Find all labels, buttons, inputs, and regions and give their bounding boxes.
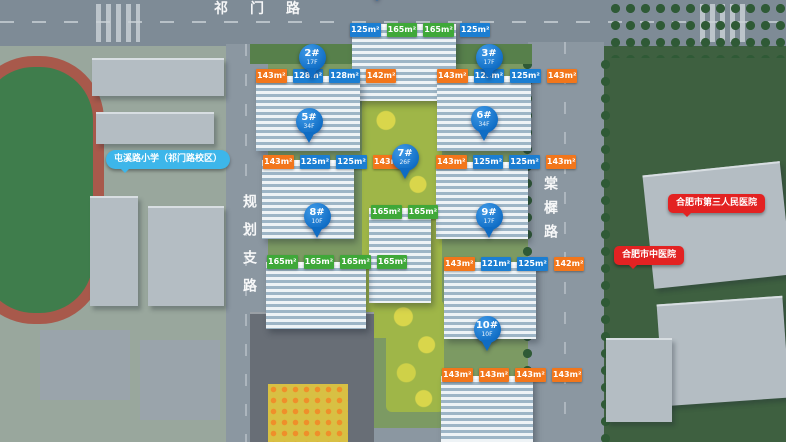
school-running-track — [0, 56, 104, 324]
pin-tail-icon — [399, 168, 411, 179]
pin-tail-icon — [483, 68, 495, 79]
pin-number: 2# — [304, 49, 319, 59]
school-building — [140, 340, 220, 420]
unit-area-label: 143m² — [444, 257, 475, 271]
unit-labels-building-5: 143m² 125m² 125m² 143m² — [263, 149, 404, 169]
pin-tail-icon — [481, 340, 493, 351]
unit-area-label: 143m² — [547, 69, 578, 83]
unit-area-label: 143m² — [546, 155, 577, 169]
pin-subtext: 34F — [478, 122, 489, 128]
map-pin-8[interactable]: 8# 10F — [302, 203, 332, 238]
pin-head: 7# 26F — [392, 144, 419, 171]
unit-area-label: 128m² — [329, 69, 360, 83]
pin-number: 10# — [476, 321, 498, 331]
hospital-building — [657, 296, 786, 407]
pin-number: 9# — [481, 208, 496, 218]
unit-area-label: 121m² — [481, 257, 512, 271]
pin-tail-icon — [371, 0, 383, 1]
hospital-label-bubble-bottom[interactable]: 合肥市中医院 — [614, 246, 684, 265]
pin-head: 2# 17F — [299, 44, 326, 71]
pin-subtext: 34F — [303, 124, 314, 130]
unit-area-label: 165m² — [387, 23, 418, 37]
unit-area-label: 165m² — [423, 23, 454, 37]
pin-head: 8# 10F — [304, 203, 331, 230]
unit-labels-building-10: 143m² 143m² 143m² 143m² — [442, 362, 583, 382]
unit-area-label: 165m² — [304, 255, 335, 269]
unit-labels-building-6: 143m² 125m² 125m² 143m² — [436, 149, 577, 169]
unit-area-label: 143m² — [263, 155, 294, 169]
crosswalk — [96, 4, 140, 42]
pin-head: 9# 17F — [476, 203, 503, 230]
unit-area-label: 125m² — [517, 257, 548, 271]
pin-number: 8# — [309, 208, 324, 218]
unit-labels-building-3: 143m² 125m² 125m² 143m² — [437, 63, 578, 83]
tree-row — [608, 0, 786, 58]
unit-labels-building-8: 165m² 165m² 165m² 165m² — [267, 249, 408, 269]
school-building — [96, 112, 214, 144]
map-pin-3[interactable]: 3# 17F — [474, 44, 504, 79]
pin-tail-icon — [311, 227, 323, 238]
pin-subtext: 17F — [483, 219, 494, 225]
unit-area-label: 125m² — [473, 155, 504, 169]
unit-area-label: 125m² — [336, 155, 367, 169]
pin-subtext: 17F — [483, 60, 494, 66]
unit-labels-building-7: 165m² 165m² — [371, 199, 439, 219]
unit-area-label: 165m² — [408, 205, 439, 219]
unit-labels-top-building: 125m² 165m² 165m² 125m² — [350, 17, 491, 37]
pin-head: 6# 34F — [471, 106, 498, 133]
map-pin-7[interactable]: 7# 26F — [390, 144, 420, 179]
unit-area-label: 142m² — [554, 257, 585, 271]
unit-area-label: 143m² — [436, 155, 467, 169]
unit-area-label: 143m² — [256, 69, 287, 83]
road-name-tangxi: 棠樨路 — [540, 176, 560, 248]
unit-area-label: 165m² — [377, 255, 408, 269]
site-plan: 125m² 165m² 165m² 125m² 143m² 128m² 128m… — [0, 0, 786, 442]
pin-subtext: 10F — [481, 332, 492, 338]
unit-area-label: 165m² — [340, 255, 371, 269]
unit-area-label: 165m² — [371, 205, 402, 219]
residential-tower-8 — [266, 262, 366, 329]
pin-tail-icon — [478, 130, 490, 141]
road-name-guihuazhi: 规划支路 — [239, 194, 259, 306]
map-pin-2[interactable]: 2# 17F — [297, 44, 327, 79]
school-label-bubble[interactable]: 屯溪路小学（祁门路校区） — [106, 150, 230, 169]
hospital-building — [606, 338, 672, 422]
pin-number: 3# — [481, 49, 496, 59]
pin-number: 5# — [301, 113, 316, 123]
central-garden — [386, 300, 444, 412]
unit-area-label: 143m² — [515, 368, 546, 382]
map-pin-6[interactable]: 6# 34F — [469, 106, 499, 141]
kindergarten-playground — [268, 384, 348, 442]
pin-head: 3# 17F — [476, 44, 503, 71]
unit-area-label: 165m² — [267, 255, 298, 269]
pin-number: 7# — [397, 149, 412, 159]
pin-number: 6# — [476, 111, 491, 121]
school-building — [148, 206, 224, 306]
pin-subtext: 17F — [306, 60, 317, 66]
pin-head: 10# 10F — [474, 316, 501, 343]
pin-tail-icon — [483, 227, 495, 238]
unit-area-label: 142m² — [366, 69, 397, 83]
pin-subtext: 10F — [311, 219, 322, 225]
unit-area-label: 125m² — [509, 155, 540, 169]
school-building — [92, 58, 224, 96]
map-pin-10[interactable]: 10# 10F — [472, 316, 502, 351]
map-pin-1-partial[interactable] — [362, 0, 392, 1]
pin-subtext: 26F — [399, 160, 410, 166]
road-name-qimen: 祁门路 — [214, 0, 322, 18]
unit-area-label: 125m² — [510, 69, 541, 83]
pin-head: 5# 34F — [296, 108, 323, 135]
residential-tower-10 — [441, 376, 533, 442]
unit-area-label: 143m² — [437, 69, 468, 83]
map-pin-9[interactable]: 9# 17F — [474, 203, 504, 238]
unit-labels-building-9: 143m² 121m² 125m² 142m² — [444, 251, 585, 271]
unit-area-label: 143m² — [479, 368, 510, 382]
hospital-label-bubble-top[interactable]: 合肥市第三人民医院 — [668, 194, 765, 213]
pin-tail-icon — [303, 132, 315, 143]
unit-area-label: 143m² — [442, 368, 473, 382]
hospital-building — [642, 161, 786, 289]
unit-area-label: 125m² — [460, 23, 491, 37]
school-building — [40, 330, 130, 400]
map-pin-5[interactable]: 5# 34F — [294, 108, 324, 143]
unit-area-label: 125m² — [300, 155, 331, 169]
school-building — [90, 196, 138, 306]
unit-area-label: 143m² — [552, 368, 583, 382]
pin-tail-icon — [306, 68, 318, 79]
unit-area-label: 125m² — [350, 23, 381, 37]
